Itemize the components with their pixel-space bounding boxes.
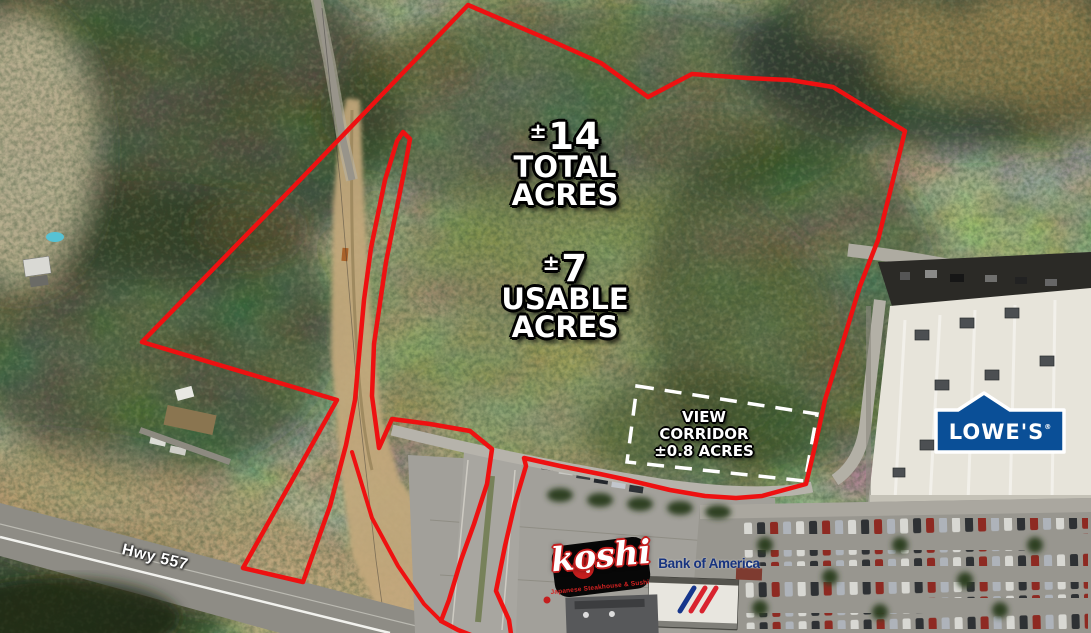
view-corridor-line3: ±0.8 ACRES [636, 443, 772, 460]
koshi-building [565, 594, 658, 633]
aerial-site-map: ±14 TOTAL ACRES ±7 USABLE ACRES VIEW COR… [0, 0, 1091, 633]
koshi-logo-text: koshi [547, 534, 655, 576]
registered-mark: ® [1044, 423, 1051, 431]
lowes-building [866, 252, 1091, 507]
bofa-logo-text: Bank of America [646, 556, 772, 571]
plus-minus-sign: ± [529, 119, 547, 143]
view-corridor-line1: VIEW [636, 409, 772, 426]
plus-minus-sign: ± [542, 251, 560, 275]
total-acres-label: ±14 TOTAL ACRES [485, 119, 645, 209]
total-acres-word2: ACRES [485, 182, 645, 210]
lowes-wordmark: LOWE'S [949, 420, 1045, 444]
view-corridor-line2: CORRIDOR [636, 426, 772, 443]
usable-acres-label: ±7 USABLE ACRES [485, 251, 645, 341]
view-corridor-label: VIEW CORRIDOR ±0.8 ACRES [636, 409, 772, 460]
lowes-logo-text: LOWE'S® [936, 420, 1064, 444]
usable-acres-word2: ACRES [485, 314, 645, 342]
